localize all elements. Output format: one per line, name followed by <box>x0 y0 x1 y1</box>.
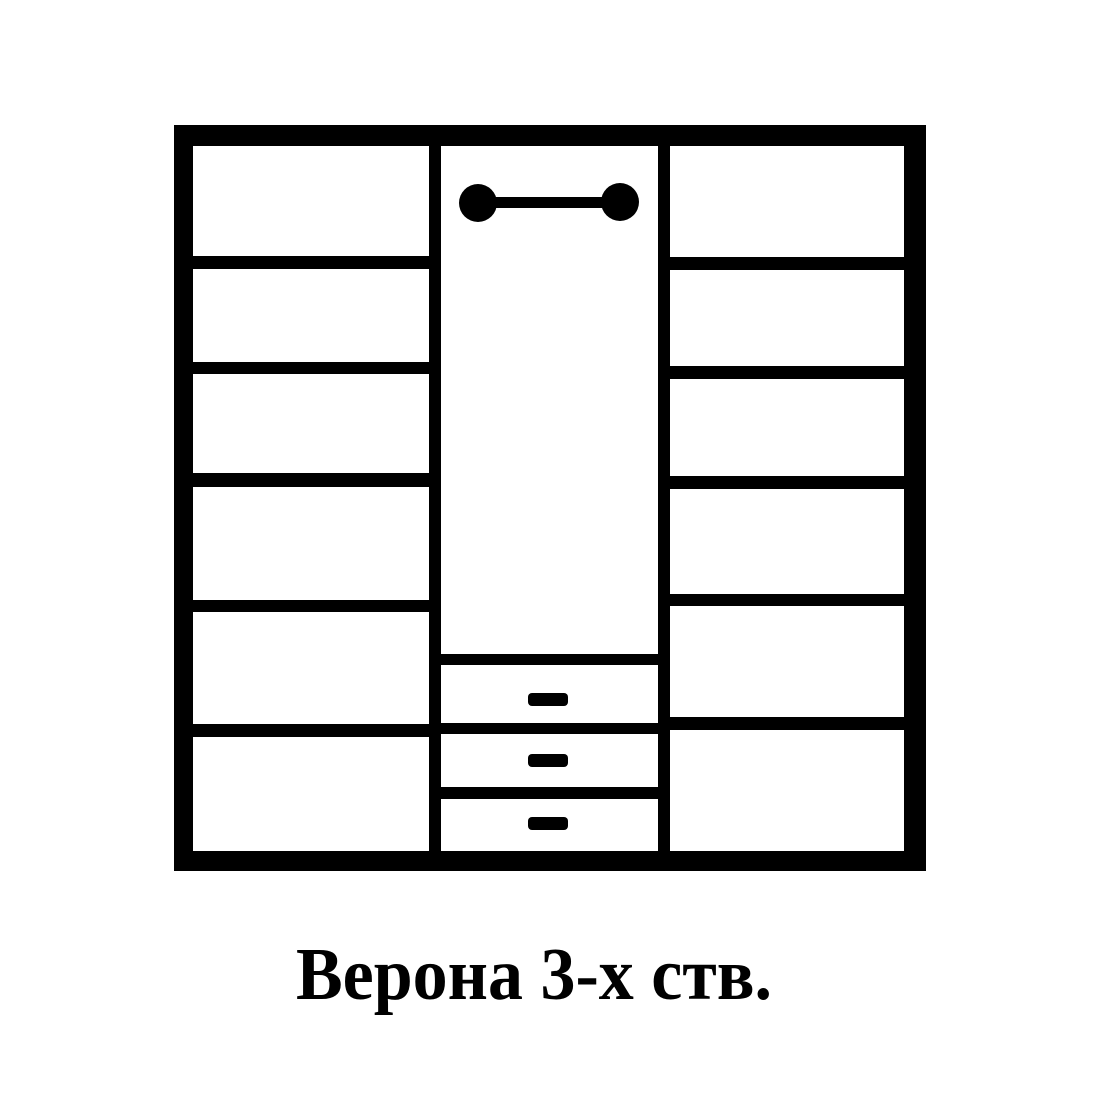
svg-text:Верона 3-х ств.: Верона 3-х ств. <box>296 934 772 1016</box>
